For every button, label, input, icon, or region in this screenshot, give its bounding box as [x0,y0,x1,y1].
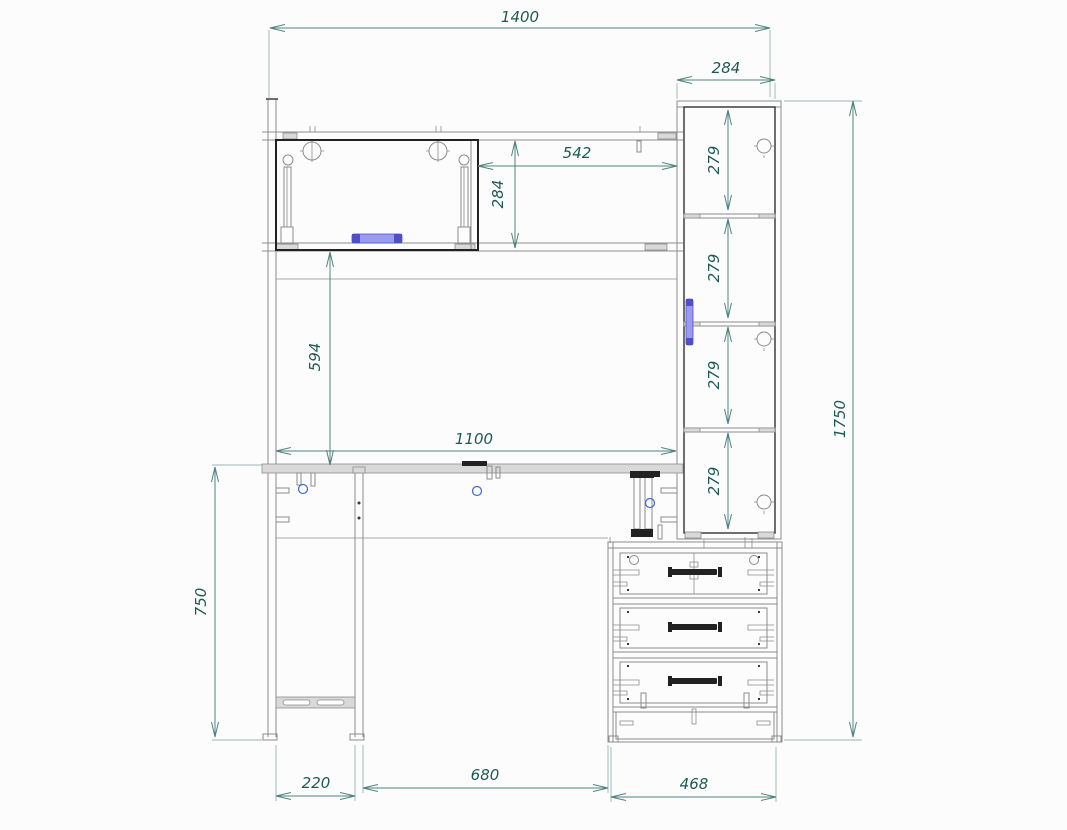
post-cap-top [630,471,654,478]
panel-tab [645,244,667,250]
gas-strut-right [458,155,470,244]
panel-tab [658,133,676,139]
dim-desk-height: 750 [192,465,262,740]
pin-dot [358,517,361,520]
drawer-rail [613,652,777,658]
dim-label-total-width: 1400 [501,8,539,26]
dim-knee-space: 680 [363,745,608,793]
connector-pin [297,473,301,485]
shelf-pin [637,141,641,152]
fitting-ticks [310,126,640,132]
right-leg [355,473,363,737]
hutch-top-panel [262,132,683,140]
dim-label-knee-space: 680 [471,766,500,784]
support-posts [630,471,662,539]
leg-foot [350,734,364,740]
panel-tab [283,133,297,139]
drawer-rail [613,598,777,604]
drawer-handle [668,567,722,577]
pin-dot [358,502,361,505]
drawer-handle [668,676,722,686]
dim-label-section-4: 279 [705,467,723,496]
cam-lock [473,487,482,496]
leg-foot [263,734,277,740]
leg-tab [276,488,289,493]
dim-label-section-3: 279 [705,361,723,390]
drawing-canvas: 1400 284 542 284 279 279 279 279 594 110… [0,0,1067,830]
drawer-3 [613,662,774,708]
door-handle [352,234,402,243]
fitting-hole [750,556,759,565]
dim-label-section-1: 279 [705,146,723,175]
legs [263,473,608,740]
leg-crossbar [276,697,355,708]
wall-tab [661,488,677,493]
dim-label-total-height: 1750 [831,400,849,438]
dim-label-drawer-unit-width: 468 [680,775,709,793]
dim-label-leg-gap: 220 [302,774,331,792]
shelf-pin [658,525,662,539]
left-side-panel [268,99,276,737]
dim-label-section-2: 279 [705,254,723,283]
dim-label-niche-height: 284 [489,180,507,209]
gas-strut-left [281,155,293,244]
dim-total-height: 1750 [784,101,862,740]
center-bracket [462,461,487,466]
cabinet-inner [684,107,775,533]
cabinet-shelves [684,214,775,538]
fitting-hole [630,556,639,565]
connector-pin [641,693,646,708]
wall-tab [661,517,677,522]
dim-label-side-cabinet-width: 284 [712,59,741,77]
plinth-panel [616,712,774,739]
connector-pin [744,693,749,708]
dim-total-width: 1400 [269,8,770,99]
dim-label-desk-height: 750 [192,588,210,617]
hinge-marks [300,141,324,162]
dim-hutch-to-desktop: 594 [306,252,330,465]
leg-tab [276,517,289,522]
dim-cabinet-sections: 279 279 279 279 [705,110,728,529]
cam-lock [646,499,655,508]
dim-desktop-span: 1100 [276,430,676,451]
cam-lock [299,485,308,494]
drawer-1 [613,553,774,594]
dim-drawer-unit-width: 468 [611,747,776,802]
door-front [276,140,478,250]
dim-label-hutch-to-desktop: 594 [306,343,324,372]
dim-label-desktop-span: 1100 [455,430,493,448]
post-cap-bottom [631,529,653,537]
hutch-door [276,140,478,250]
dim-niche-width: 542 [478,144,677,166]
desktop [262,461,683,496]
connector-pin [311,473,315,486]
dim-side-cabinet-width: 284 [677,59,775,99]
hinge-marks [426,141,450,162]
drawer-2 [613,608,774,648]
cabinet-door-handle [686,299,693,345]
assembly-drawing: 1400 284 542 284 279 279 279 279 594 110… [0,0,1067,830]
drawer-handle [668,622,722,632]
drawer-unit [608,537,782,742]
dim-niche-height: 284 [489,141,515,248]
dim-leg-gap: 220 [276,745,355,801]
leg-cap [353,467,365,473]
plinth [609,707,781,742]
dim-label-niche-width: 542 [563,144,592,162]
